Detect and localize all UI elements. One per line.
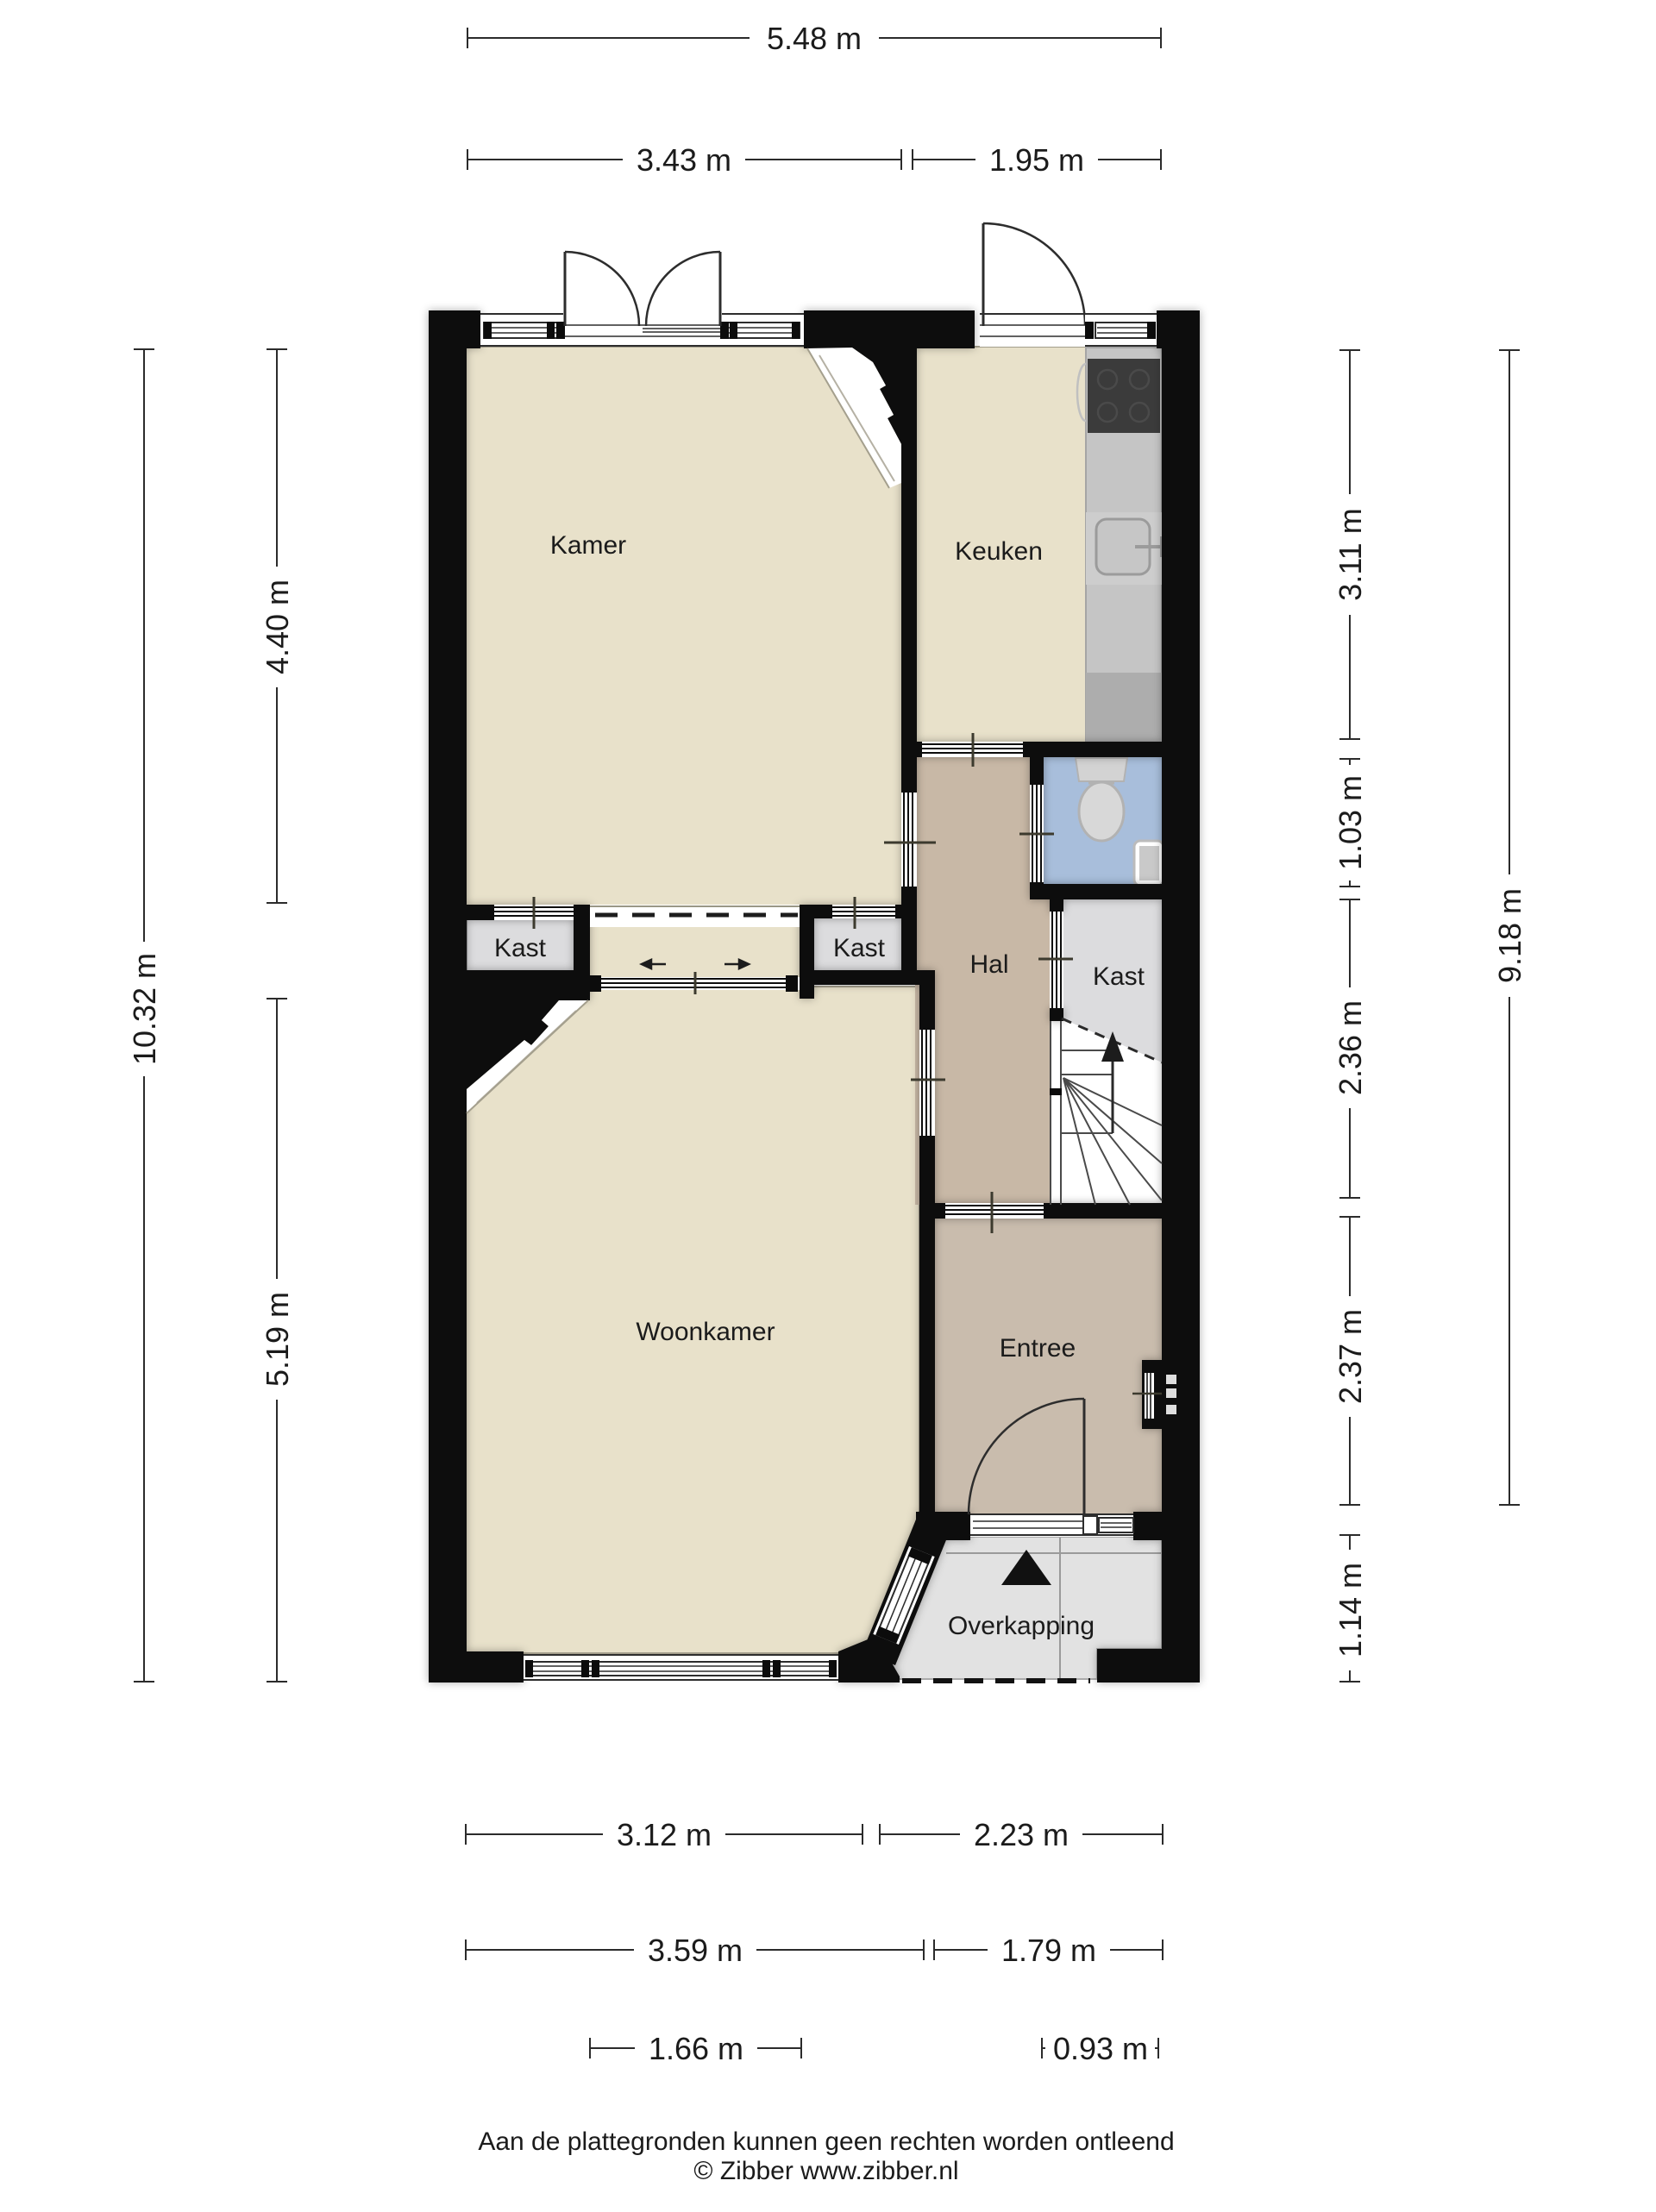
svg-text:1.79 m: 1.79 m [1001, 1933, 1096, 1968]
svg-text:3.12 m: 3.12 m [617, 1817, 712, 1852]
svg-text:Kamer: Kamer [550, 531, 626, 560]
svg-text:2.36 m: 2.36 m [1333, 1000, 1368, 1095]
svg-text:1.95 m: 1.95 m [989, 142, 1084, 178]
svg-text:3.43 m: 3.43 m [637, 142, 731, 178]
svg-text:2.37 m: 2.37 m [1333, 1309, 1368, 1404]
svg-text:Keuken: Keuken [955, 537, 1043, 566]
svg-text:Kast: Kast [1093, 962, 1145, 991]
svg-text:Kast: Kast [833, 934, 886, 962]
svg-text:© Zibber www.zibber.nl: © Zibber www.zibber.nl [693, 2157, 958, 2185]
svg-text:3.59 m: 3.59 m [648, 1933, 743, 1968]
svg-text:3.11 m: 3.11 m [1333, 508, 1368, 600]
svg-text:Kast: Kast [494, 934, 547, 962]
svg-text:2.23 m: 2.23 m [974, 1817, 1069, 1852]
svg-text:1.03 m: 1.03 m [1333, 775, 1368, 870]
svg-text:9.18 m: 9.18 m [1492, 888, 1527, 983]
svg-text:0.93 m: 0.93 m [1053, 2031, 1148, 2066]
svg-text:4.40 m: 4.40 m [260, 580, 295, 674]
svg-text:5.48 m: 5.48 m [767, 21, 862, 56]
svg-text:Aan de plattegronden kunnen ge: Aan de plattegronden kunnen geen rechten… [478, 2127, 1174, 2156]
svg-text:1.14 m: 1.14 m [1333, 1563, 1368, 1657]
svg-text:Overkapping: Overkapping [948, 1612, 1095, 1640]
svg-text:Entree: Entree [1000, 1334, 1076, 1363]
svg-text:Hal: Hal [969, 950, 1008, 979]
svg-text:10.32 m: 10.32 m [127, 953, 162, 1065]
svg-text:1.66 m: 1.66 m [649, 2031, 743, 2066]
svg-text:5.19 m: 5.19 m [260, 1292, 295, 1387]
svg-text:Woonkamer: Woonkamer [636, 1318, 775, 1346]
